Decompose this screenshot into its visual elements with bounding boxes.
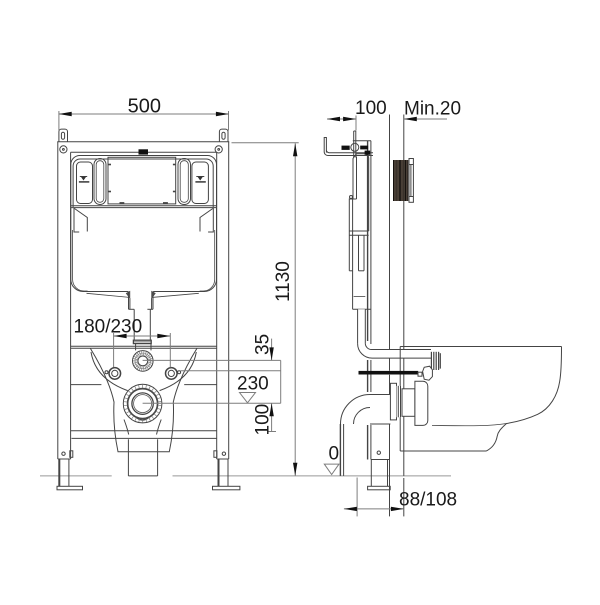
svg-text:35: 35 <box>252 334 273 355</box>
svg-text:88/108: 88/108 <box>399 490 457 511</box>
svg-text:500: 500 <box>128 96 161 118</box>
svg-text:1130: 1130 <box>273 261 294 302</box>
svg-text:Min.20: Min.20 <box>404 99 461 120</box>
svg-text:180/230: 180/230 <box>74 317 143 338</box>
svg-text:230: 230 <box>237 374 269 395</box>
svg-text:100: 100 <box>252 404 273 436</box>
svg-text:100: 100 <box>355 98 387 119</box>
svg-text:0: 0 <box>329 443 340 464</box>
